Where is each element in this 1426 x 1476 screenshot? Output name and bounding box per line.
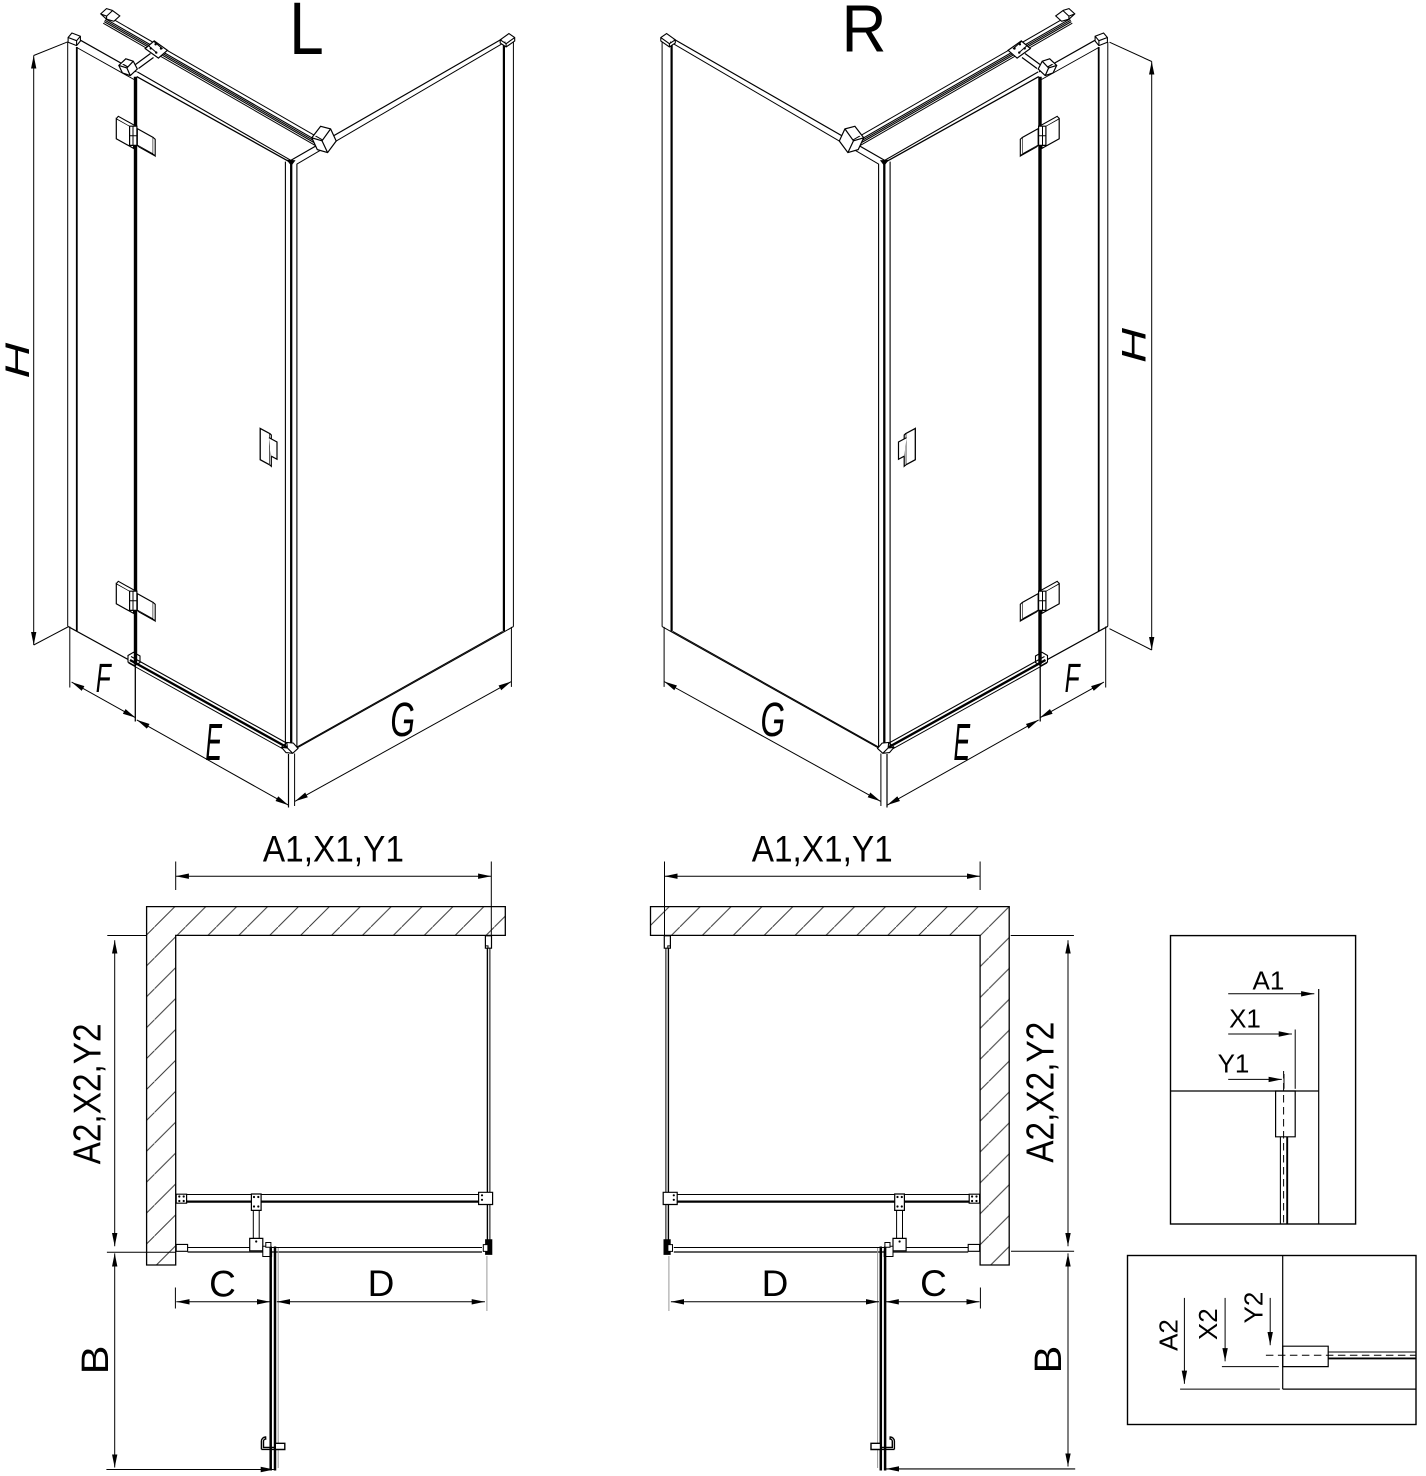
svg-text:E: E: [953, 713, 970, 772]
svg-text:A1: A1: [1252, 965, 1284, 995]
svg-text:C: C: [209, 1264, 236, 1305]
svg-text:F: F: [1065, 656, 1082, 702]
svg-text:R: R: [842, 0, 887, 66]
svg-text:L: L: [289, 0, 323, 70]
svg-text:Y1: Y1: [1218, 1048, 1250, 1078]
svg-text:B: B: [74, 1345, 117, 1374]
svg-text:F: F: [96, 656, 113, 702]
svg-text:G: G: [390, 692, 415, 746]
svg-text:H: H: [0, 342, 37, 378]
svg-text:A2,X2,Y2: A2,X2,Y2: [1020, 1022, 1063, 1163]
svg-text:X2: X2: [1193, 1308, 1223, 1340]
svg-text:G: G: [760, 692, 785, 746]
svg-text:X1: X1: [1229, 1004, 1261, 1034]
svg-text:A1,X1,Y1: A1,X1,Y1: [263, 827, 404, 869]
svg-text:Y2: Y2: [1238, 1292, 1268, 1324]
svg-text:E: E: [205, 713, 222, 772]
svg-text:A2,X2,Y2: A2,X2,Y2: [67, 1023, 110, 1164]
svg-text:A2: A2: [1154, 1319, 1184, 1351]
svg-text:A1,X1,Y1: A1,X1,Y1: [752, 827, 893, 869]
svg-text:D: D: [368, 1263, 395, 1304]
svg-text:D: D: [762, 1263, 789, 1304]
svg-text:B: B: [1028, 1346, 1070, 1374]
svg-text:H: H: [1114, 327, 1152, 363]
svg-text:C: C: [920, 1263, 947, 1304]
